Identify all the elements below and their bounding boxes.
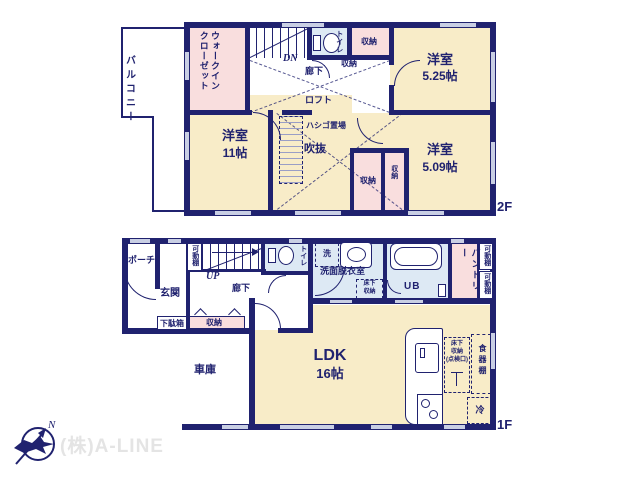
closet-1-label-2f: 収納 [360,176,376,186]
wall [278,328,313,333]
kitchen-underfloor-label-1: 床下 [444,341,470,348]
window-marker [440,23,476,27]
floor2-label: 2F [497,199,512,215]
wall [122,328,255,334]
compass-north-logo: N [10,416,66,472]
wall [190,110,252,115]
shelf-r2-label: 可動棚 [482,273,491,298]
floor1-label: 1F [497,417,512,433]
wall [383,240,387,298]
room-11-name: 洋室 [200,128,270,144]
laundry-label: 洗 [315,249,339,259]
toilet-label-1f: トイレ [298,245,307,271]
room-5-09-size: 5.09帖 [402,160,478,174]
fridge-label: 冷 [467,405,493,416]
window-marker [280,425,334,429]
shelf-r1-label: 可動棚 [482,245,491,270]
window-marker [491,333,495,369]
stairs-up-label: UP [206,271,219,283]
company-name: (株)A-LINE [60,436,164,459]
wall [261,271,311,275]
stove-burner [421,399,430,408]
entrance-door-arc [124,268,156,300]
shelf-left-label: 可動棚 [190,245,199,270]
wall [122,238,128,334]
wall [350,148,354,210]
stove-burner [429,410,438,419]
kitchen-faucet [420,348,425,358]
window-marker [289,239,302,243]
window-marker [371,425,392,429]
window-marker [295,211,341,215]
balcony-outline-lower [152,116,185,212]
bird-silhouette [14,436,54,454]
wall [350,148,409,153]
wall [381,150,385,210]
door-arc [268,275,286,293]
bath-label: UB [404,281,420,293]
hall-storage-label-2f: 収納 [341,59,357,69]
void-label: 吹抜 [304,143,326,156]
toilet-tank-fixture [268,248,276,263]
room-5-09-name: 洋室 [402,142,478,158]
kitchen-sink [415,343,439,373]
ladder-label: ハシゴ置場 [306,121,346,131]
room-5-25-name: 洋室 [402,52,478,68]
room-11-size: 11帖 [200,146,270,160]
window-marker [444,425,465,429]
toilet-bowl-fixture [278,246,294,265]
underfloor-label-1: 床下 [356,281,383,288]
wall [448,238,452,304]
closet-2-label-2f: 収納 [389,165,398,187]
ldk-size: 16帖 [295,366,365,382]
ldk-name: LDK [295,346,365,365]
kitchen-underfloor-mark [451,372,463,373]
bathtub-inner [394,247,438,266]
wall [245,28,250,113]
loft-label: ロフト [305,95,332,106]
window-marker [282,23,324,27]
window-marker [185,132,189,160]
window-marker [330,300,352,303]
floorplan-canvas: バルコニー ウォークインクローゼット DN 収納 廊下 トイレ 収納 洋室 5.… [0,0,640,480]
window-marker [222,425,248,429]
wall [307,28,312,58]
stairs-dn-label: DN [283,53,297,65]
window-marker [451,239,464,243]
hall-storage-label-1f: 収納 [206,318,222,328]
stairs-1f-arrow-line [212,252,254,253]
window-marker [130,239,150,243]
hall-label-1f: 廊下 [232,283,250,294]
stairs-1f-arrowhead [252,248,259,256]
toilet-label-2f: トイレ [334,30,343,56]
room-5-25-size: 5.25帖 [402,69,478,83]
window-marker [185,52,189,80]
north-label: N [47,419,56,431]
balcony-label: バルコニー [122,55,135,139]
porch-label: ポーチ [128,255,155,266]
wall [389,110,490,115]
wall [282,110,312,115]
window-marker [491,142,495,184]
window-marker [395,300,423,303]
hall-label-2f: 廊下 [305,66,323,77]
washbasin-bowl [347,247,366,262]
underfloor-label-2: 収納 [356,289,383,296]
shoe-cabinet-label: 下駄箱 [160,319,184,329]
cupboard-label: 食器棚 [477,344,487,384]
walkin-closet-label: ウォークインクローゼット [194,31,220,95]
balcony-join-patch [154,114,185,120]
kitchen-underfloor-label-2: 収納 [444,349,470,356]
pantry-label: パントリー [458,248,481,302]
entrance-label: 玄関 [160,288,180,300]
kitchen-underfloor-label-3: (点検口) [444,357,470,364]
stove-fixture [417,394,443,425]
toilet-tank-fixture [313,35,321,51]
window-marker [168,239,181,243]
kitchen-underfloor-mark-stem [456,372,457,386]
ladder-hatch [279,116,303,184]
washroom-label: 洗面脱衣室 [320,266,365,277]
window-marker [215,211,251,215]
garage-label: 車庫 [194,364,216,377]
shower-fixture [438,284,446,297]
closet-top-label-2f: 収納 [361,37,377,47]
wall [308,243,313,330]
window-marker [491,52,495,102]
wall [389,55,394,65]
window-marker [408,211,444,215]
